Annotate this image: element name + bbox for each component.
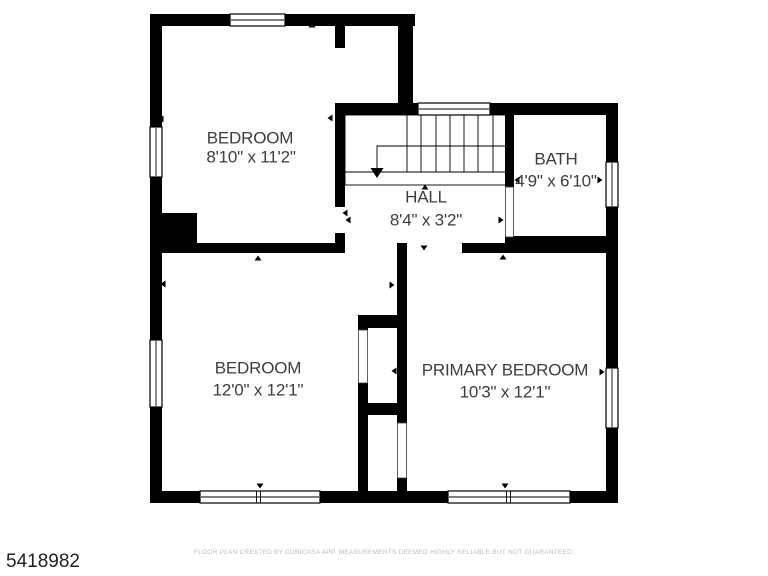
room-dims-primary-bedroom: 10'3" x 12'1" bbox=[460, 384, 551, 401]
window-stairwell bbox=[418, 103, 490, 115]
marker-left bbox=[392, 368, 397, 375]
marker-up bbox=[255, 256, 262, 261]
marker-up bbox=[500, 255, 507, 260]
window-right-bath bbox=[606, 162, 618, 207]
room-dims-bedroom2: 12'0" x 12'1" bbox=[213, 382, 304, 399]
stair-flight-outline bbox=[345, 115, 507, 172]
window-bottom-bedroom2 bbox=[200, 491, 320, 503]
chimney-block bbox=[150, 213, 197, 245]
window-right-primary bbox=[606, 368, 618, 428]
room-name-bedroom2: BEDROOM bbox=[215, 360, 301, 377]
window-left-bedroom1 bbox=[150, 127, 162, 177]
room-name-primary-bedroom: PRIMARY BEDROOM bbox=[422, 362, 588, 379]
wall-hall-left bbox=[335, 103, 345, 207]
wall-closet-left-stub bbox=[335, 26, 345, 48]
marker-right bbox=[598, 177, 603, 184]
wall-left bbox=[150, 14, 162, 503]
floorplan-drawing bbox=[0, 0, 768, 576]
marker-right bbox=[499, 217, 504, 224]
marker-left bbox=[346, 217, 351, 224]
room-dims-hall: 8'4" x 3'2" bbox=[390, 212, 462, 229]
marker-right bbox=[600, 369, 605, 376]
disclaimer-text: FLOOR PLAN CREATED BY CUBICASA APP. MEAS… bbox=[194, 549, 574, 556]
marker-left bbox=[328, 115, 333, 122]
window-top-bedroom1 bbox=[230, 14, 285, 26]
door-openings-layer bbox=[359, 187, 514, 478]
room-name-bath: BATH bbox=[534, 151, 577, 168]
wall-bath-left-stub bbox=[505, 237, 514, 253]
wall-between-bedrooms-stub bbox=[397, 478, 407, 493]
wall-closet-right bbox=[398, 14, 413, 115]
marker-right bbox=[390, 282, 395, 289]
walls-layer bbox=[150, 14, 618, 503]
wall-bath-left bbox=[505, 103, 514, 187]
closet-door-opening-left bbox=[359, 330, 368, 383]
dimension-markers bbox=[159, 23, 605, 489]
room-name-bedroom1: BEDROOM bbox=[207, 130, 293, 147]
staircase bbox=[345, 115, 507, 185]
stair-landing-outline bbox=[345, 172, 507, 185]
room-name-hall: HALL bbox=[405, 189, 447, 206]
listing-id: 5418982 bbox=[6, 551, 80, 573]
window-bottom-primary bbox=[448, 491, 570, 503]
window-left-bedroom2 bbox=[150, 340, 162, 407]
room-dims-bedroom1: 8'10" x 11'2" bbox=[206, 149, 295, 166]
marker-down bbox=[257, 484, 264, 489]
marker-down bbox=[421, 246, 428, 251]
wall-between-bedrooms bbox=[397, 243, 407, 423]
wall-bath-bottom bbox=[505, 236, 618, 246]
wall-closet-divider bbox=[358, 403, 407, 415]
marker-left bbox=[343, 210, 348, 217]
marker-down bbox=[502, 484, 509, 489]
wall-closet-top bbox=[358, 315, 407, 328]
room-dims-bath: 4'9" x 6'10" bbox=[515, 173, 596, 190]
stair-walk-line bbox=[377, 146, 505, 169]
windows-layer bbox=[150, 14, 618, 503]
stair-treads bbox=[421, 115, 493, 172]
bath-door-opening bbox=[506, 187, 514, 237]
wall-closetA-lower bbox=[358, 383, 368, 493]
closet-door-opening-right bbox=[398, 423, 407, 478]
stair-direction-arrow bbox=[371, 168, 384, 178]
floorplan-page: BEDROOM 8'10" x 11'2" BATH 4'9" x 6'10" … bbox=[0, 0, 768, 576]
